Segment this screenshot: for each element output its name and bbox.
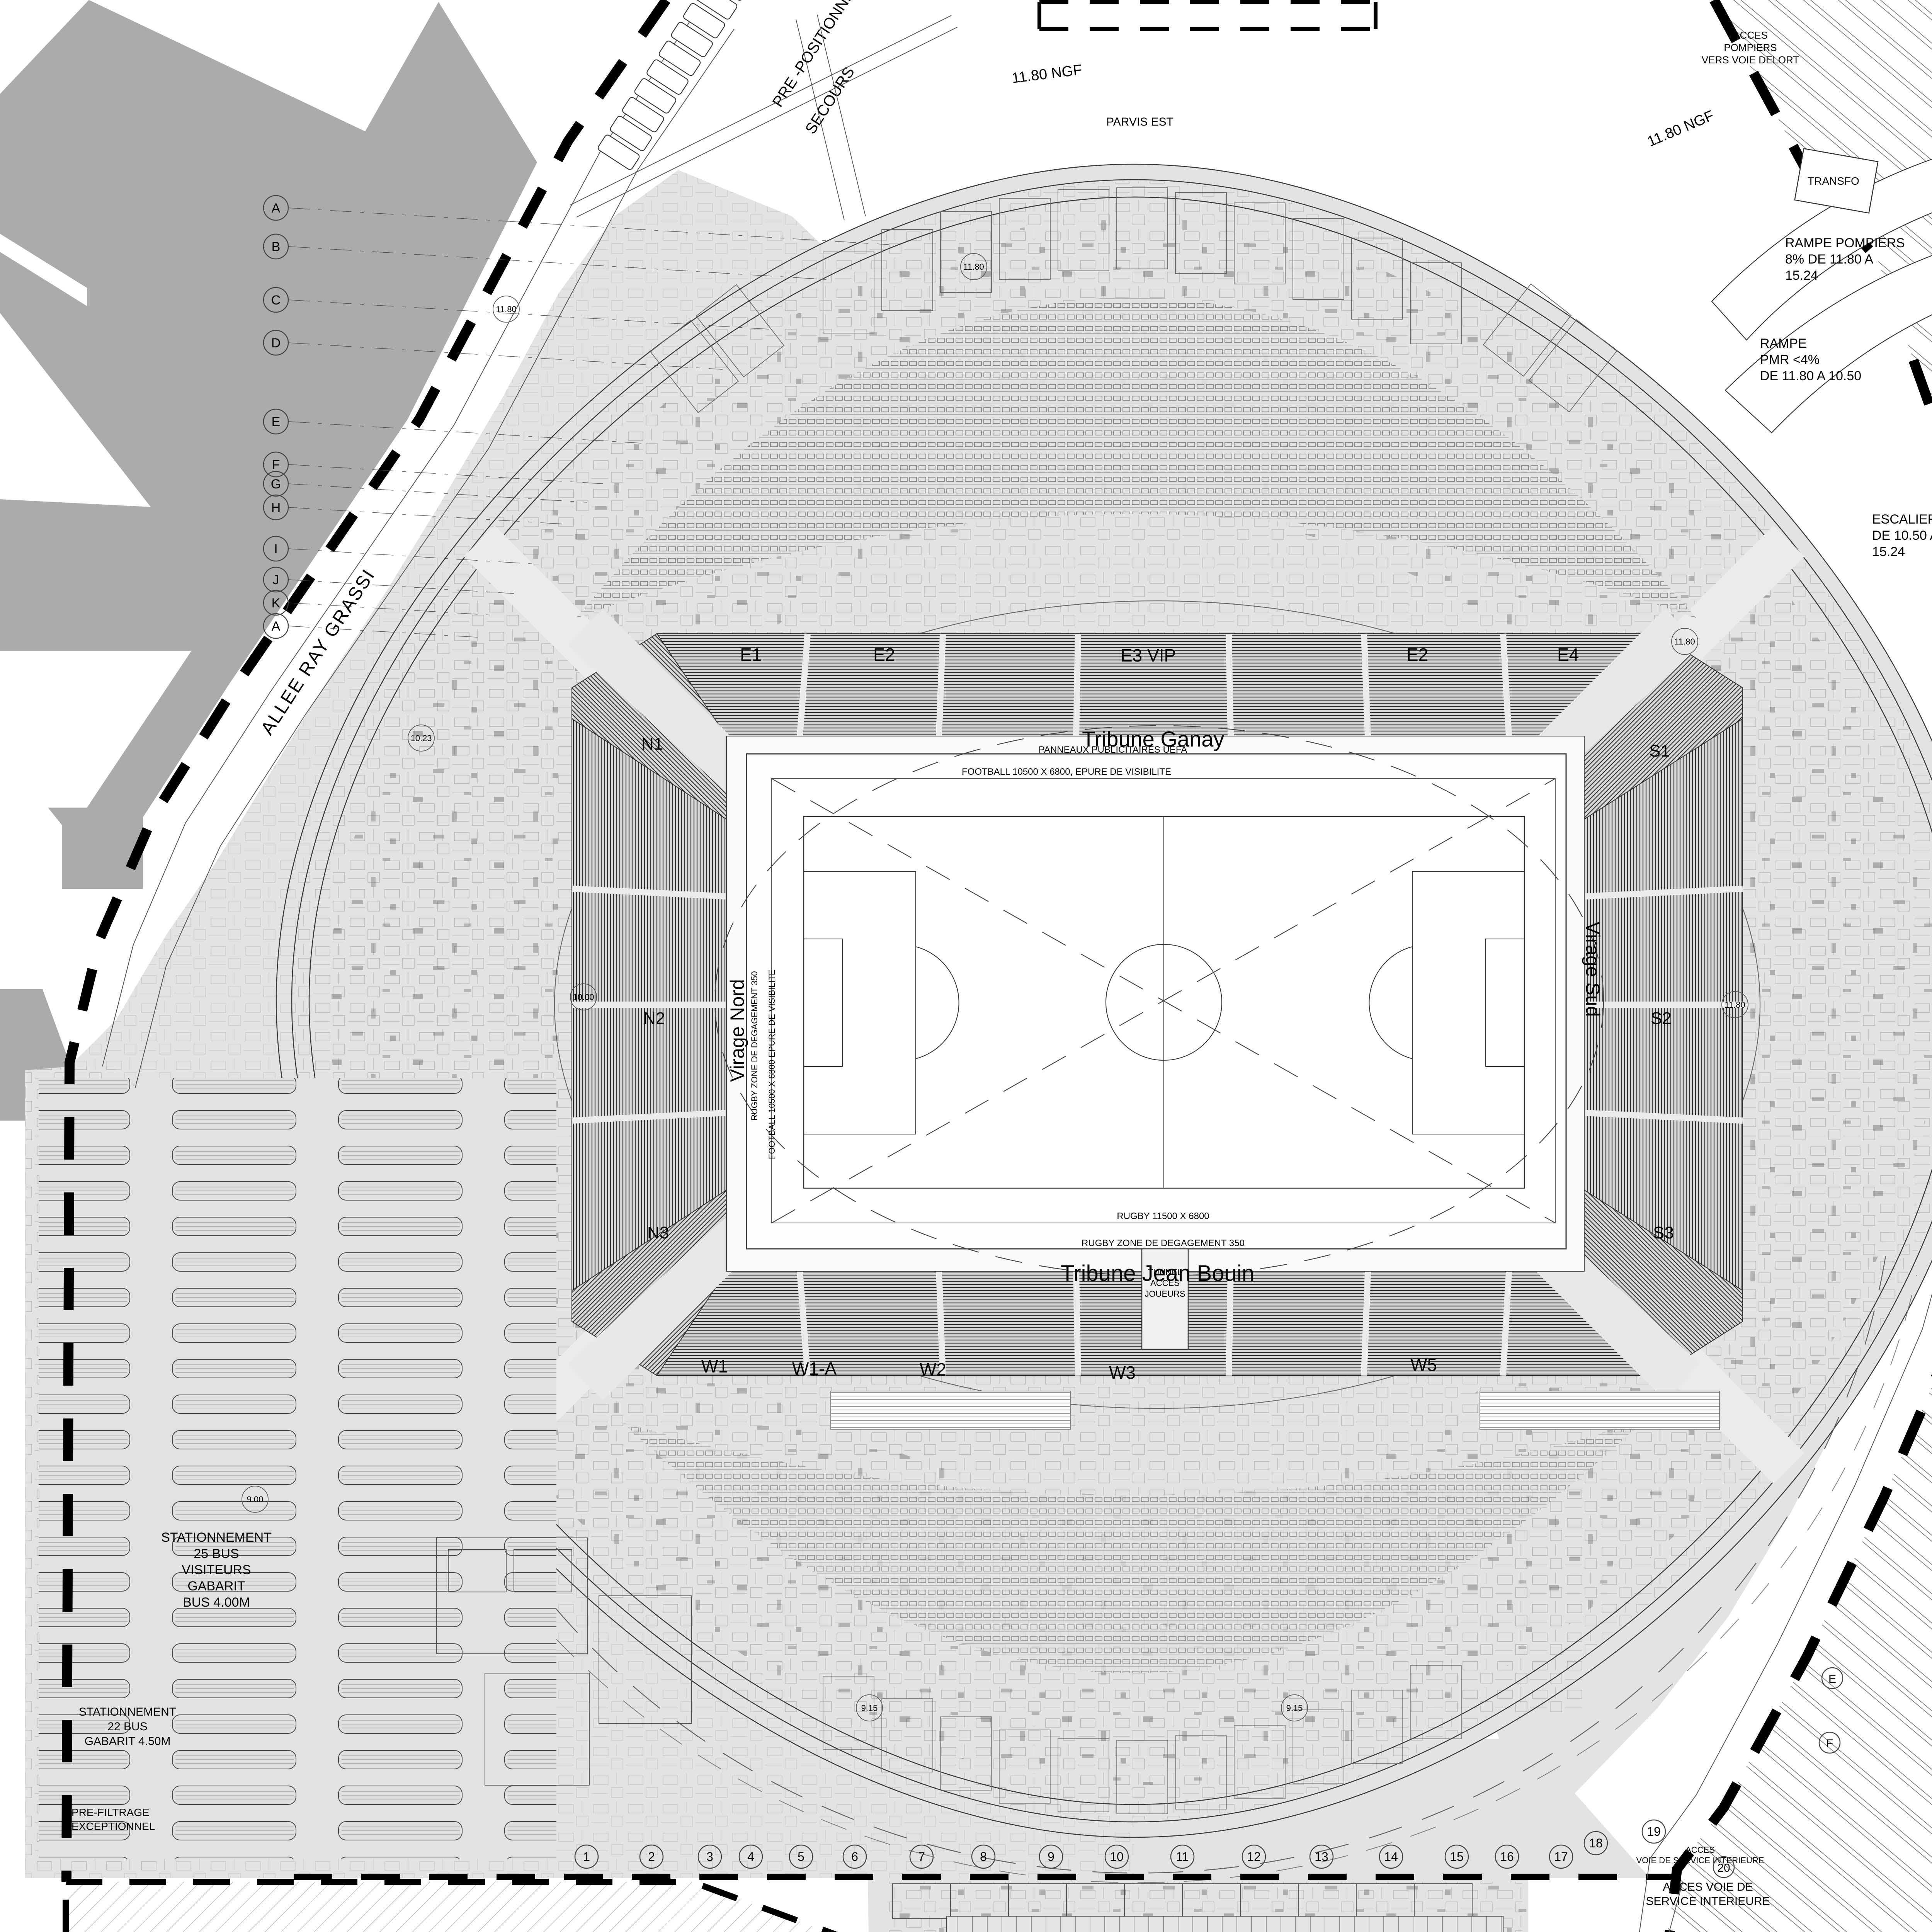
svg-text:PMR <4%: PMR <4%: [1760, 352, 1820, 367]
svg-text:G: G: [271, 477, 281, 492]
svg-text:12: 12: [1247, 1850, 1261, 1864]
svg-text:JOUEURS: JOUEURS: [1145, 1289, 1185, 1299]
svg-text:15.24: 15.24: [1872, 544, 1905, 559]
svg-text:2: 2: [648, 1850, 655, 1864]
svg-text:W5: W5: [1410, 1355, 1437, 1375]
svg-text:N3: N3: [647, 1223, 669, 1242]
svg-text:3: 3: [706, 1850, 713, 1864]
svg-text:I: I: [274, 542, 277, 556]
svg-text:10.00: 10.00: [573, 992, 594, 1002]
svg-text:K: K: [272, 596, 281, 611]
svg-text:20: 20: [1717, 1862, 1730, 1874]
svg-text:7: 7: [918, 1850, 925, 1864]
svg-text:15: 15: [1450, 1850, 1464, 1864]
svg-text:9.15: 9.15: [861, 1703, 878, 1713]
svg-text:S1: S1: [1649, 742, 1670, 760]
svg-text:6: 6: [851, 1850, 858, 1864]
svg-text:11.80: 11.80: [1725, 1000, 1745, 1010]
svg-text:ESCALIER: ESCALIER: [1872, 512, 1932, 527]
svg-text:S3: S3: [1653, 1223, 1674, 1242]
svg-text:E: E: [272, 415, 281, 429]
svg-text:13: 13: [1315, 1850, 1328, 1864]
svg-text:EXCEPTIONNEL: EXCEPTIONNEL: [71, 1820, 155, 1832]
svg-text:DE 10.50 A: DE 10.50 A: [1872, 528, 1932, 543]
svg-text:22 BUS: 22 BUS: [107, 1720, 147, 1733]
svg-text:STATIONNEMENT: STATIONNEMENT: [79, 1706, 176, 1718]
svg-text:11.80: 11.80: [1674, 637, 1695, 646]
svg-text:N2: N2: [643, 1009, 665, 1028]
svg-text:RUGBY ZONE DE DEGAGEMENT 350: RUGBY ZONE DE DEGAGEMENT 350: [750, 971, 759, 1121]
svg-text:10.23: 10.23: [410, 733, 432, 743]
svg-text:BUS 4.00M: BUS 4.00M: [183, 1595, 250, 1610]
svg-text:19: 19: [1647, 1825, 1661, 1838]
svg-text:W2: W2: [920, 1359, 946, 1379]
svg-text:ACCES: ACCES: [1733, 29, 1768, 41]
svg-text:Tribune Jean Bouin: Tribune Jean Bouin: [1061, 1261, 1254, 1286]
svg-text:S2: S2: [1651, 1009, 1672, 1028]
svg-text:F: F: [272, 457, 280, 472]
svg-text:E: E: [1828, 1673, 1836, 1685]
svg-text:E3 VIP: E3 VIP: [1121, 645, 1176, 665]
svg-text:B: B: [272, 240, 281, 254]
svg-text:C: C: [271, 293, 281, 308]
svg-text:GABARIT: GABARIT: [187, 1579, 245, 1594]
svg-text:PARVIS EST: PARVIS EST: [1106, 116, 1173, 128]
svg-text:FOOTBALL 10500 X 6800, EPURE D: FOOTBALL 10500 X 6800, EPURE DE VISIBILI…: [962, 767, 1171, 777]
svg-text:4: 4: [747, 1850, 754, 1864]
svg-text:ACCES VOIE DE: ACCES VOIE DE: [1663, 1881, 1753, 1893]
svg-text:15.24: 15.24: [1785, 268, 1818, 283]
svg-text:TRANSFO: TRANSFO: [1808, 175, 1859, 187]
svg-text:PRE-FILTRAGE: PRE-FILTRAGE: [71, 1806, 150, 1818]
svg-text:W1-A: W1-A: [792, 1359, 837, 1379]
svg-text:8: 8: [980, 1850, 987, 1864]
svg-text:Virage Nord: Virage Nord: [726, 979, 748, 1082]
svg-text:F: F: [1826, 1737, 1833, 1750]
svg-text:9.15: 9.15: [1286, 1703, 1303, 1713]
svg-text:GABARIT 4.50M: GABARIT 4.50M: [85, 1735, 171, 1748]
svg-text:E2: E2: [873, 645, 895, 665]
svg-text:11.80: 11.80: [963, 262, 984, 272]
svg-text:Virage Sud: Virage Sud: [1582, 922, 1604, 1017]
svg-text:ACCES: ACCES: [1685, 1845, 1715, 1855]
svg-text:16: 16: [1500, 1850, 1514, 1864]
svg-text:1: 1: [583, 1850, 590, 1864]
svg-text:E4: E4: [1557, 645, 1579, 665]
svg-text:W3: W3: [1109, 1362, 1136, 1383]
svg-text:5: 5: [798, 1850, 804, 1864]
svg-text:DE 11.80 A 10.50: DE 11.80 A 10.50: [1760, 369, 1861, 383]
svg-text:E1: E1: [740, 645, 762, 665]
svg-text:W1: W1: [701, 1356, 728, 1376]
svg-text:FOOTBALL 10500 X 6800 EPURE DE: FOOTBALL 10500 X 6800 EPURE DE VISIBILIT…: [767, 969, 777, 1159]
svg-text:9: 9: [1048, 1850, 1054, 1864]
svg-text:17: 17: [1554, 1850, 1568, 1864]
svg-text:VISITEURS: VISITEURS: [182, 1563, 251, 1577]
svg-text:9.00: 9.00: [247, 1495, 264, 1504]
svg-text:10: 10: [1110, 1850, 1124, 1864]
svg-text:J: J: [273, 573, 279, 587]
svg-text:N1: N1: [641, 735, 663, 753]
svg-text:VERS VOIE DELORT: VERS VOIE DELORT: [1702, 54, 1799, 66]
svg-text:H: H: [271, 500, 281, 515]
svg-text:A: A: [272, 619, 281, 634]
svg-text:11.80: 11.80: [496, 304, 516, 314]
svg-text:D: D: [271, 336, 281, 350]
svg-text:25 BUS: 25 BUS: [194, 1546, 239, 1561]
svg-text:14: 14: [1384, 1850, 1398, 1864]
svg-text:11: 11: [1176, 1850, 1189, 1864]
svg-text:RAMPE: RAMPE: [1760, 336, 1807, 351]
svg-text:STATIONNEMENT: STATIONNEMENT: [161, 1530, 272, 1545]
svg-text:Tribune Ganay: Tribune Ganay: [1082, 727, 1224, 751]
svg-text:E2: E2: [1406, 645, 1428, 665]
svg-text:RUGBY 11500 X 6800: RUGBY 11500 X 6800: [1117, 1211, 1209, 1221]
svg-text:8% DE 11.80 A: 8% DE 11.80 A: [1785, 252, 1873, 267]
svg-text:RAMPE POMPIERS: RAMPE POMPIERS: [1785, 236, 1905, 250]
svg-text:POMPIERS: POMPIERS: [1724, 42, 1777, 53]
svg-text:18: 18: [1589, 1836, 1603, 1850]
svg-text:SERVICE INTERIEURE: SERVICE INTERIEURE: [1646, 1895, 1770, 1908]
svg-text:VOIE DE SERVICE INTERIEURE: VOIE DE SERVICE INTERIEURE: [1636, 1855, 1764, 1865]
svg-text:RUGBY ZONE DE DEGAGEMENT 350: RUGBY ZONE DE DEGAGEMENT 350: [1082, 1238, 1245, 1248]
svg-text:A: A: [272, 201, 281, 216]
